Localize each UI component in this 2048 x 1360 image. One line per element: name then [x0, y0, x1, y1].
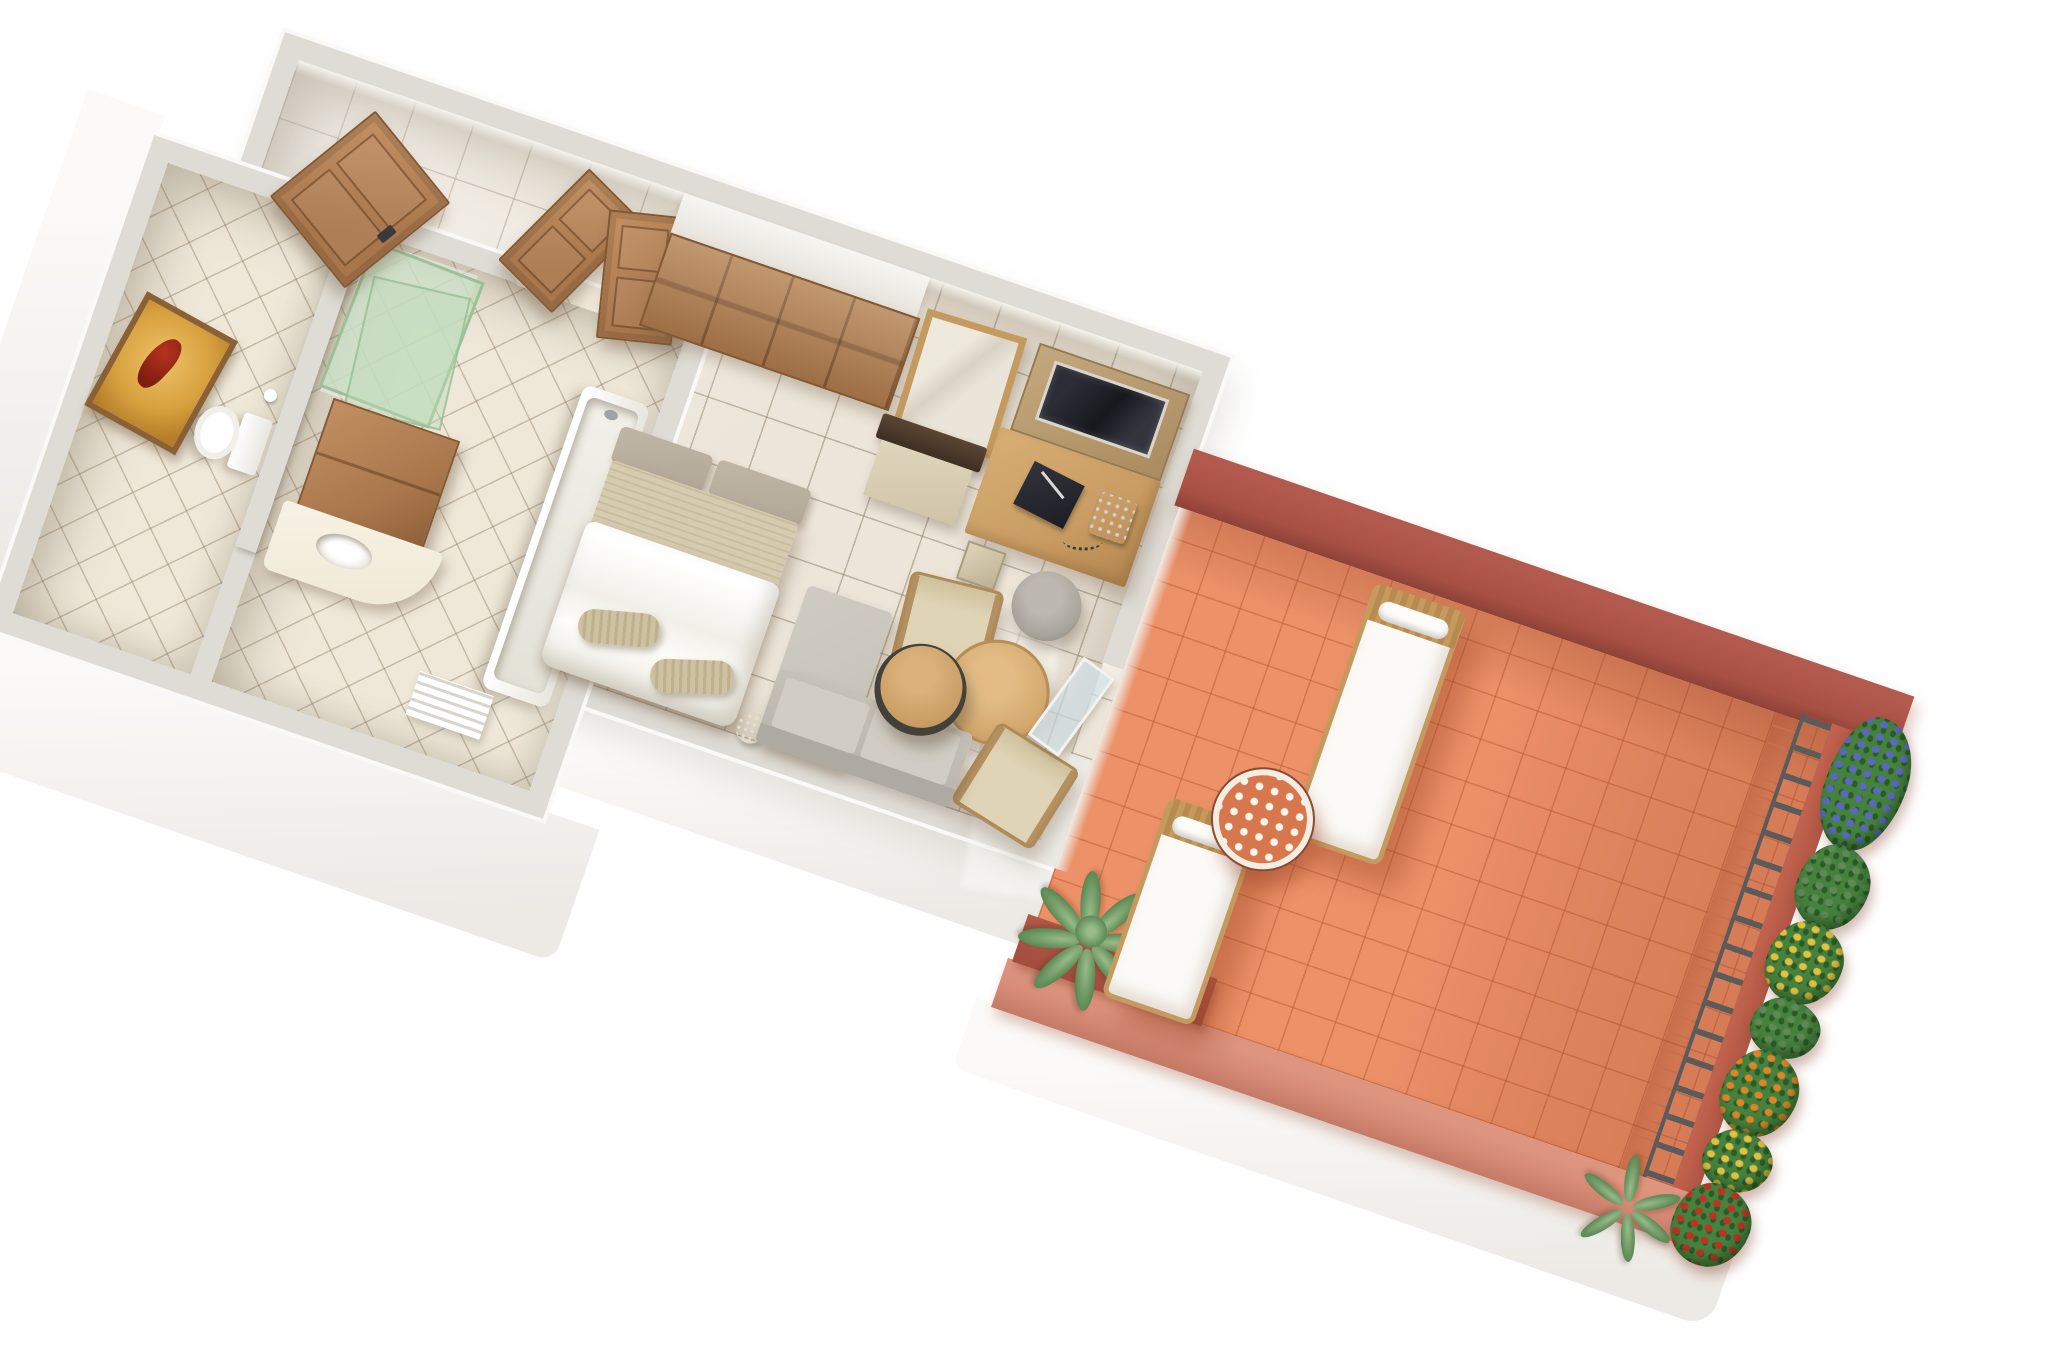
wall-art-motif — [130, 333, 189, 393]
rotated-plan — [285, 32, 286, 33]
foot-pillow-1 — [577, 608, 662, 649]
potted-plant — [1091, 931, 1092, 932]
foot-pillow-2 — [650, 658, 735, 695]
door-lock-plate — [376, 224, 396, 243]
telephone-cord — [1063, 531, 1103, 551]
floor-plan-scene — [0, 0, 2048, 1249]
vanity-door-line — [316, 451, 440, 496]
folder-pen — [1041, 471, 1064, 499]
